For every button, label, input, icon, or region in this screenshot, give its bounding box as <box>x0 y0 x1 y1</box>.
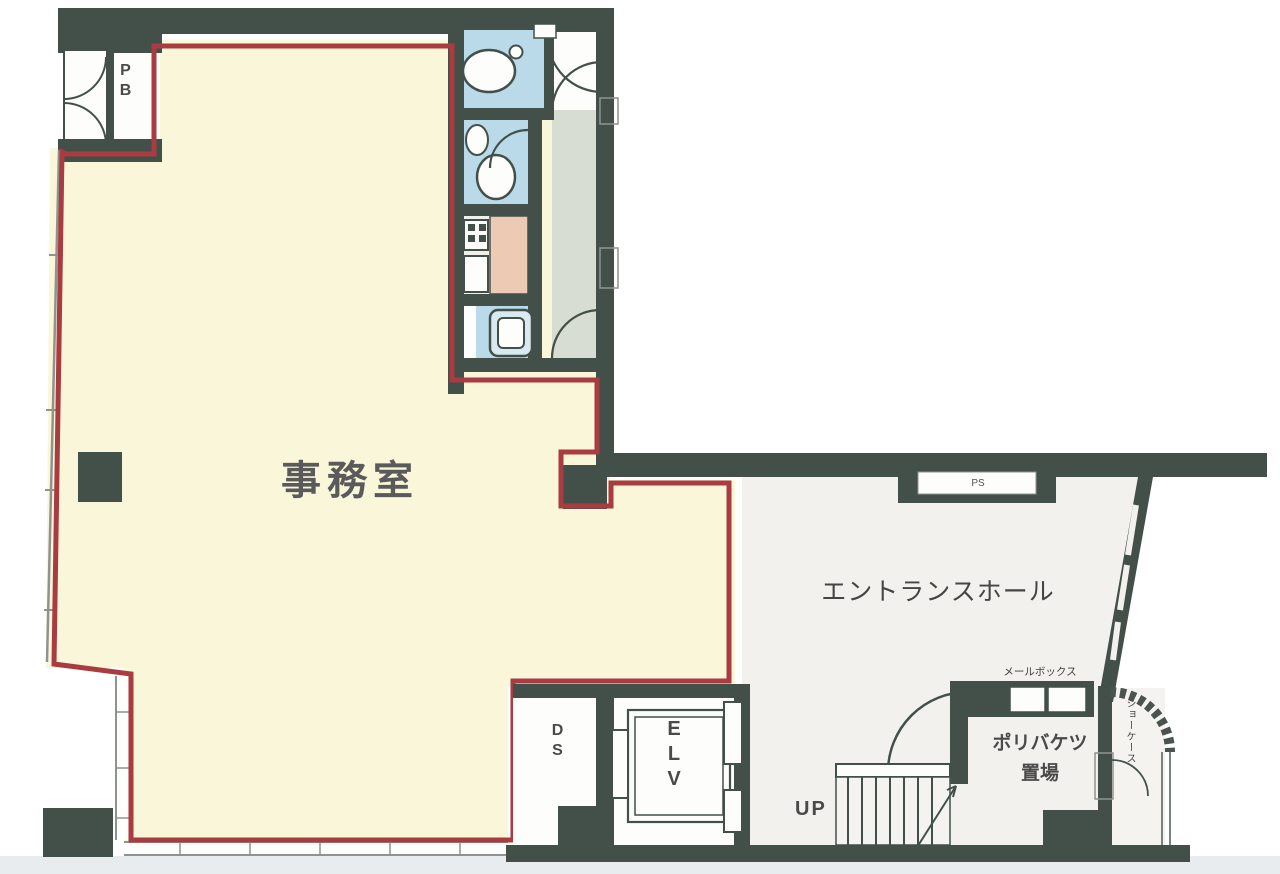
floor-plan: 事務室 エントランスホール PS メールボックス ポリバケツ 置場 UP PB … <box>0 0 1280 874</box>
sink-icon <box>466 125 488 155</box>
window-wall-bottom <box>124 842 508 856</box>
stove-icon <box>464 220 488 250</box>
kitchen-counter <box>490 216 528 294</box>
duct-space-label: DS <box>548 722 566 762</box>
corridor-floor <box>552 110 596 360</box>
basin-icon <box>490 310 532 356</box>
pipe-box-label: PB <box>116 62 134 102</box>
office-label: 事務室 <box>245 448 455 506</box>
structural-column <box>78 452 122 502</box>
wall-segment <box>448 204 542 216</box>
bucket-storage-label: ポリバケツ <box>970 728 1110 755</box>
mailbox-unit <box>950 681 1094 717</box>
utility-ledge <box>462 304 476 360</box>
wall-segment <box>106 51 114 139</box>
toilet-icon-2 <box>477 155 515 199</box>
wall-segment <box>448 108 554 120</box>
storage-block <box>1043 810 1105 848</box>
wall-segment <box>58 139 162 162</box>
stairs-up-label: UP <box>795 798 845 821</box>
wall-segment <box>448 294 542 306</box>
wall-segment <box>513 684 750 698</box>
bucket-storage-label: 置場 <box>970 758 1110 785</box>
corner-column <box>43 808 113 857</box>
structural-column <box>563 465 607 509</box>
bottom-wall <box>506 845 1190 862</box>
kitchen-sink-icon <box>464 256 488 292</box>
wall-segment <box>950 681 968 777</box>
top-entry-opening <box>534 24 556 38</box>
wall-segment <box>448 358 600 372</box>
wall-segment <box>58 8 162 53</box>
elevator-label: ELV <box>662 718 685 793</box>
mailbox-label: メールボックス <box>975 664 1105 679</box>
stairs <box>836 764 956 852</box>
pb-door-bay <box>64 51 106 139</box>
ds-step <box>558 806 598 846</box>
pipe-shaft-label: PS <box>950 477 1006 490</box>
entrance-hall-label: エントランスホール <box>798 572 1078 608</box>
sanitary-rooms <box>448 20 602 394</box>
service-core <box>513 684 750 862</box>
stair-rail <box>836 764 950 777</box>
showcase-label: ショーケース <box>1122 698 1137 764</box>
